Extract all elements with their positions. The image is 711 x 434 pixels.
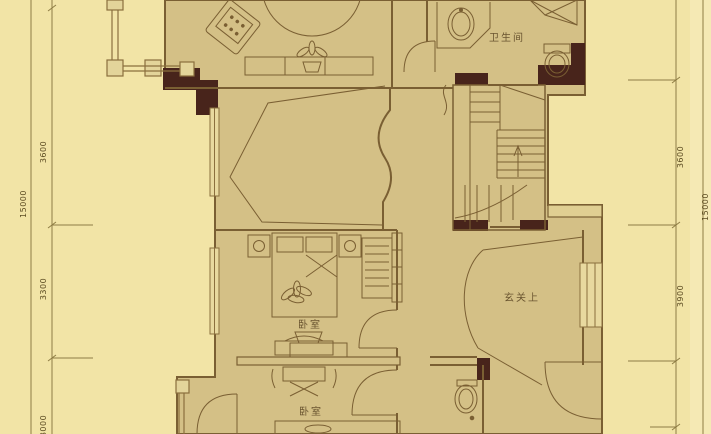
dim-left-total: 15000 bbox=[19, 190, 28, 218]
dim-left-seg2: 3300 bbox=[39, 278, 48, 300]
dim-right-seg2: 3900 bbox=[676, 285, 685, 307]
bathroom-label: 卫生间 bbox=[489, 31, 525, 44]
bedroom-mid-label: 卧室 bbox=[298, 318, 322, 331]
bedroom-window bbox=[210, 248, 219, 334]
dim-left-seg3: 3000 bbox=[39, 415, 48, 434]
foyer-label: 玄关上 bbox=[504, 291, 540, 304]
dim-right-total: 15000 bbox=[701, 193, 710, 221]
floor-plan-canvas: 卫生间 玄关上 bbox=[0, 0, 711, 434]
partition-wall-band bbox=[237, 357, 400, 365]
living-room-window bbox=[210, 108, 219, 196]
foyer-window bbox=[580, 263, 602, 327]
dim-right-seg1: 3600 bbox=[676, 146, 685, 168]
bedroom-bottom-label: 卧室 bbox=[299, 405, 323, 418]
foyer-top-wall-band bbox=[548, 205, 602, 217]
dim-left-seg1: 3600 bbox=[39, 141, 48, 163]
